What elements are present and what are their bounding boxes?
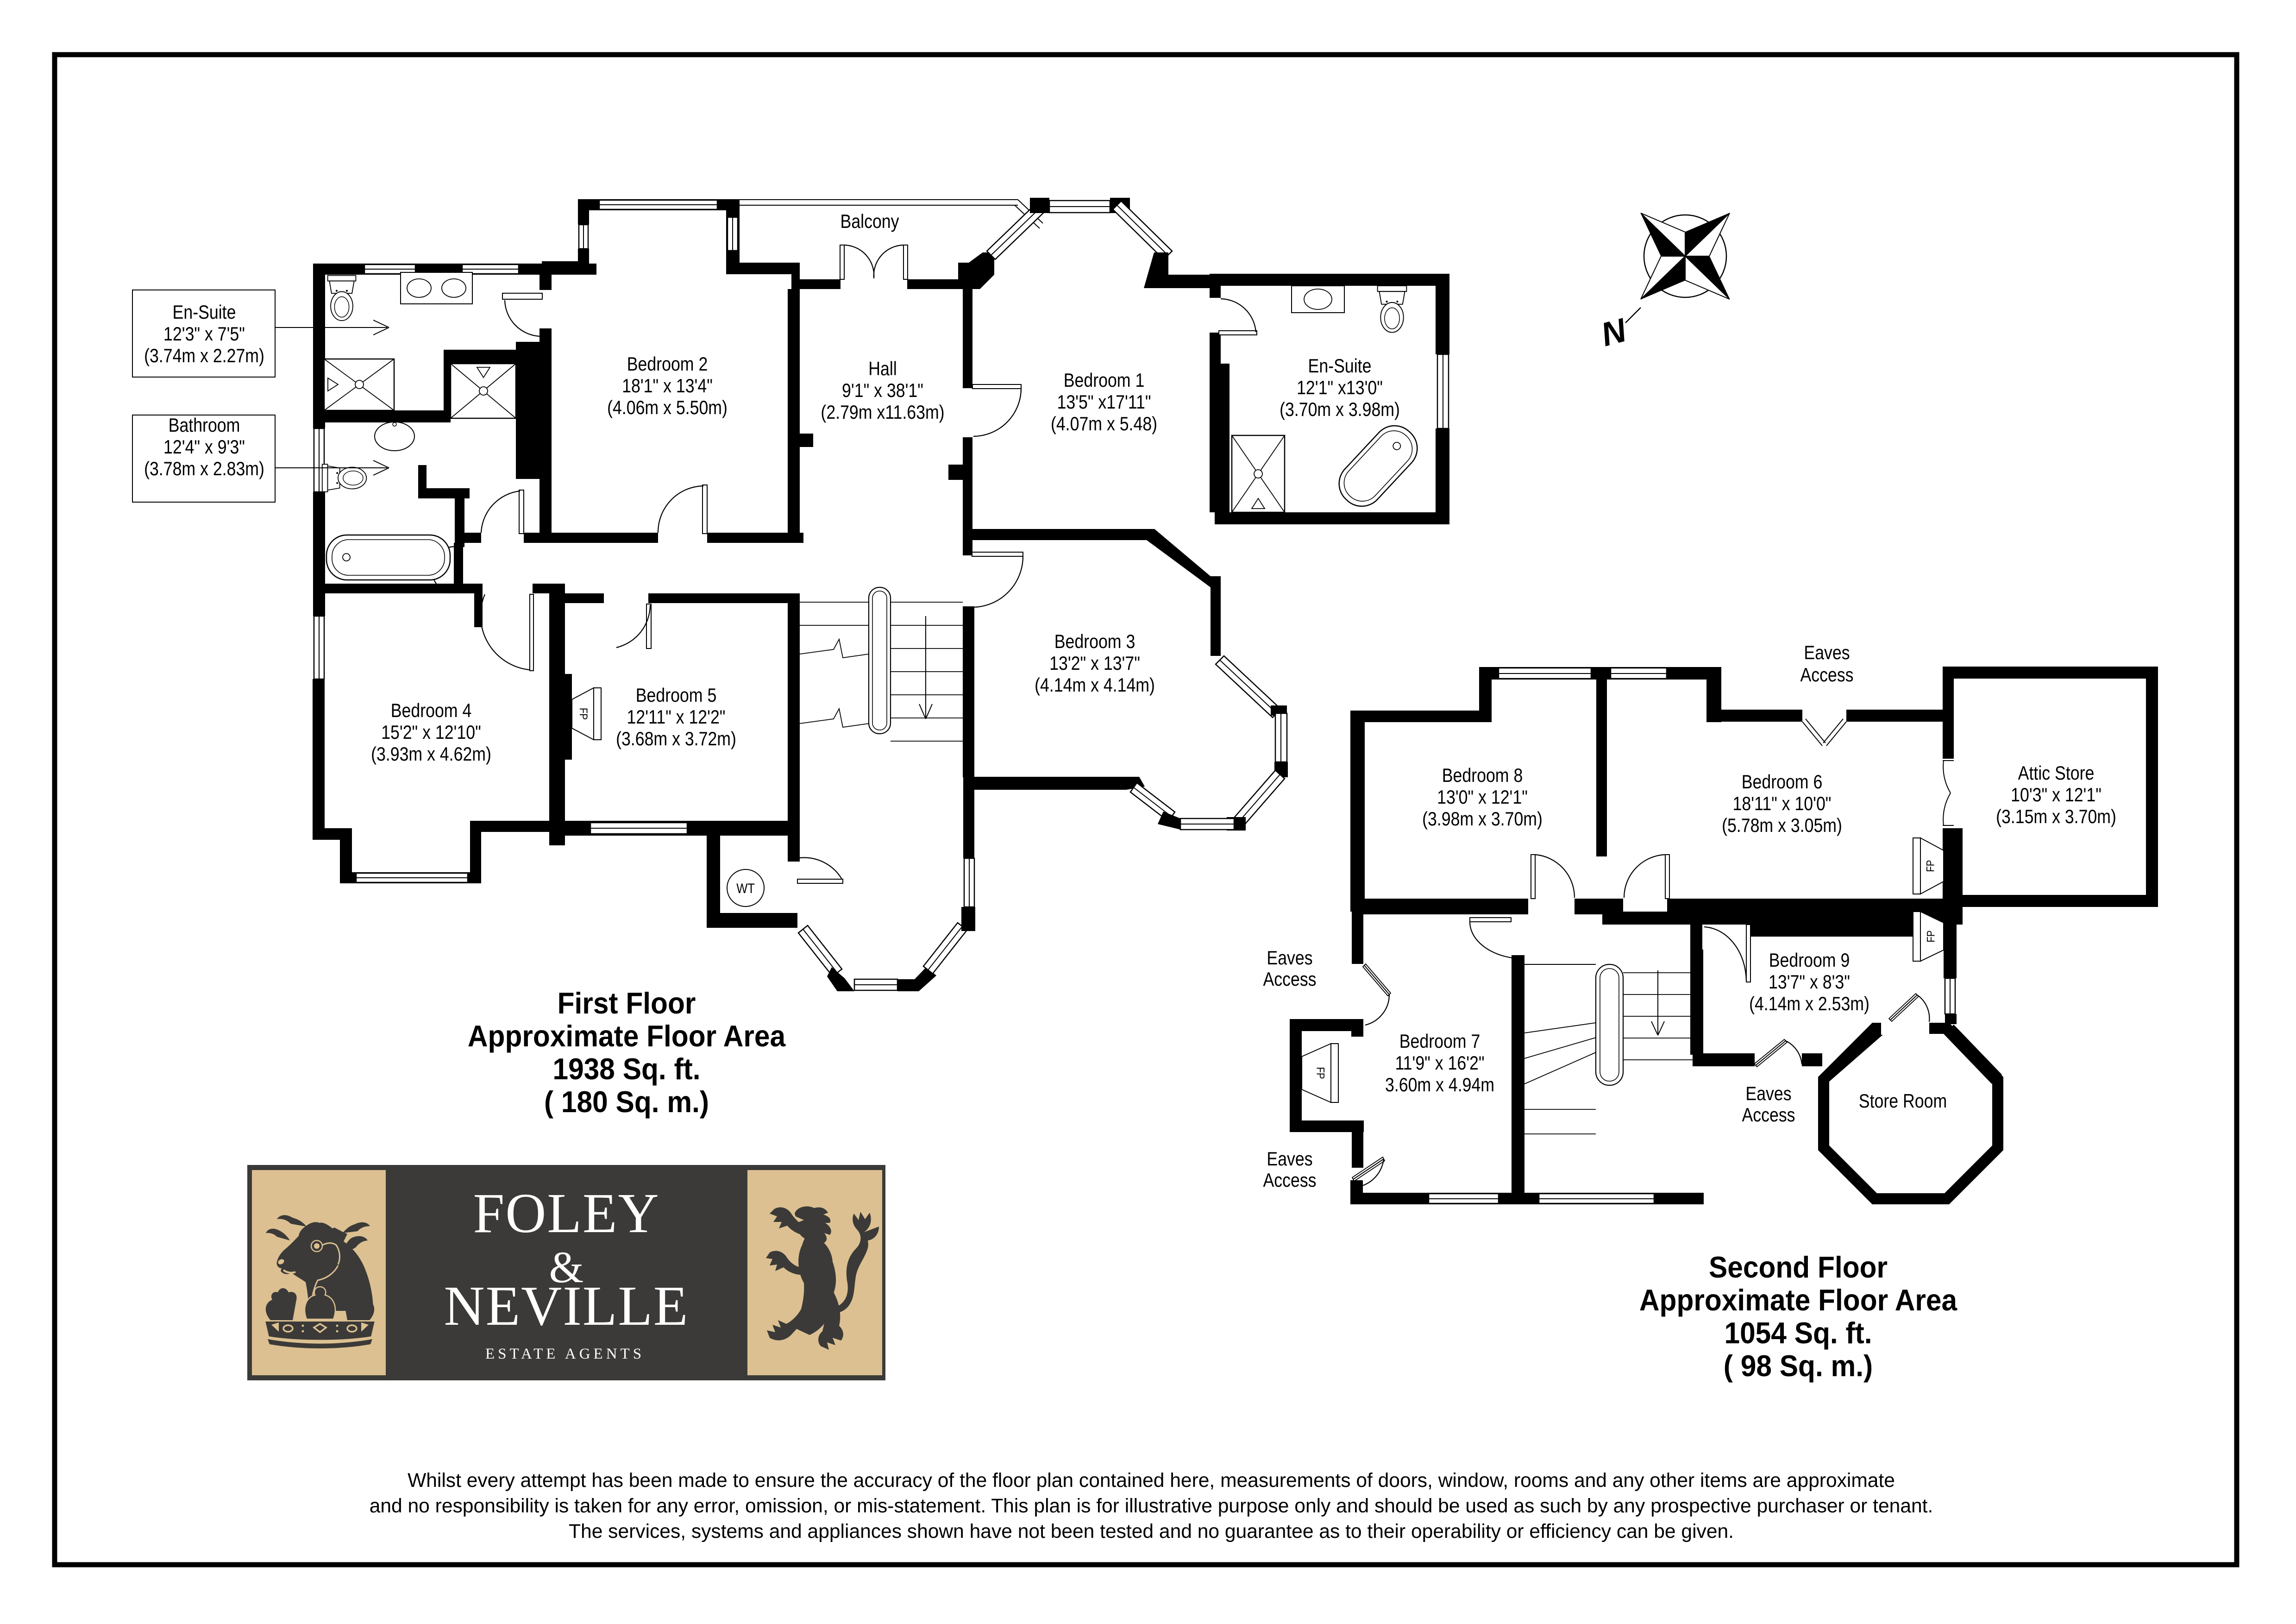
svg-text:3.60m x 4.94m: 3.60m x 4.94m: [1385, 1074, 1494, 1095]
svg-text:Bedroom 3: Bedroom 3: [1054, 631, 1135, 652]
svg-text:Balcony: Balcony: [841, 211, 899, 232]
svg-text:(4.07m x 5.48): (4.07m x 5.48): [1051, 413, 1157, 434]
svg-text:18'1" x 13'4": 18'1" x 13'4": [622, 375, 713, 397]
svg-text:The services, systems and appl: The services, systems and appliances sho…: [569, 1520, 1734, 1542]
svg-text:13'7" x 8'3": 13'7" x 8'3": [1769, 971, 1850, 993]
svg-text:Bedroom 1: Bedroom 1: [1064, 370, 1145, 391]
svg-text:Bedroom 7: Bedroom 7: [1399, 1031, 1480, 1052]
svg-text:13'2" x 13'7": 13'2" x 13'7": [1049, 653, 1140, 674]
svg-text:Store Room: Store Room: [1859, 1090, 1947, 1112]
svg-text:12'4" x 9'3": 12'4" x 9'3": [163, 436, 245, 458]
svg-text:13'0" x 12'1": 13'0" x 12'1": [1437, 787, 1528, 808]
svg-text:and no responsibility is taken: and no responsibility is taken for any e…: [370, 1495, 1933, 1517]
svg-text:Second Floor: Second Floor: [1709, 1251, 1888, 1284]
svg-text:Approximate Floor Area: Approximate Floor Area: [468, 1020, 786, 1053]
svg-text:Access: Access: [1263, 969, 1316, 990]
svg-text:(2.79m x11.63m): (2.79m x11.63m): [821, 402, 944, 423]
svg-text:(4.14m x 4.14m): (4.14m x 4.14m): [1035, 674, 1155, 696]
svg-text:Whilst every attempt has been: Whilst every attempt has been made to en…: [408, 1469, 1895, 1492]
svg-text:(3.68m x 3.72m): (3.68m x 3.72m): [616, 728, 736, 749]
svg-text:(5.78m x 3.05m): (5.78m x 3.05m): [1722, 815, 1842, 836]
svg-text:FOLEY: FOLEY: [473, 1182, 659, 1245]
svg-text:Bedroom 4: Bedroom 4: [391, 700, 472, 721]
svg-text:12'11" x 12'2": 12'11" x 12'2": [627, 706, 726, 728]
svg-text:13'5" x17'11": 13'5" x17'11": [1057, 391, 1151, 413]
svg-text:18'11" x 10'0": 18'11" x 10'0": [1733, 793, 1832, 814]
svg-text:12'3" x 7'5": 12'3" x 7'5": [163, 323, 245, 345]
svg-text:Access: Access: [1263, 1170, 1316, 1191]
svg-text:(3.74m x 2.27m): (3.74m x 2.27m): [144, 345, 264, 366]
svg-text:9'1" x 38'1": 9'1" x 38'1": [842, 380, 923, 401]
svg-text:NEVILLE: NEVILLE: [444, 1275, 689, 1337]
svg-text:First Floor: First Floor: [558, 987, 696, 1020]
svg-text:Bedroom 8: Bedroom 8: [1442, 765, 1523, 786]
svg-text:1938 Sq. ft.: 1938 Sq. ft.: [552, 1052, 700, 1086]
svg-text:Attic Store: Attic Store: [2018, 762, 2095, 784]
svg-text:En-Suite: En-Suite: [173, 302, 236, 323]
svg-text:(4.06m x 5.50m): (4.06m x 5.50m): [607, 397, 728, 418]
svg-text:ESTATE AGENTS: ESTATE AGENTS: [485, 1346, 645, 1362]
svg-text:Bedroom 6: Bedroom 6: [1742, 771, 1823, 793]
svg-text:FP: FP: [577, 708, 590, 720]
svg-text:FP: FP: [1924, 860, 1937, 872]
svg-text:(3.98m x 3.70m): (3.98m x 3.70m): [1422, 808, 1543, 830]
svg-text:Eaves: Eaves: [1745, 1083, 1791, 1104]
svg-text:FP: FP: [1925, 930, 1937, 942]
svg-text:10'3" x 12'1": 10'3" x 12'1": [2011, 784, 2102, 806]
svg-text:15'2" x 12'10": 15'2" x 12'10": [381, 722, 481, 743]
svg-text:( 98 Sq. m.): ( 98 Sq. m.): [1724, 1349, 1873, 1383]
svg-text:Approximate Floor Area: Approximate Floor Area: [1639, 1284, 1957, 1317]
svg-text:FP: FP: [1314, 1067, 1327, 1079]
svg-text:1054 Sq. ft.: 1054 Sq. ft.: [1724, 1316, 1872, 1350]
svg-text:(3.93m x 4.62m): (3.93m x 4.62m): [371, 743, 491, 765]
svg-text:(4.14m x 2.53m): (4.14m x 2.53m): [1749, 993, 1869, 1014]
svg-text:WT: WT: [736, 881, 755, 896]
svg-text:Bedroom 5: Bedroom 5: [636, 685, 717, 706]
svg-text:Bedroom 2: Bedroom 2: [627, 353, 708, 375]
svg-text:Hall: Hall: [868, 358, 897, 379]
svg-text:Bedroom 9: Bedroom 9: [1769, 950, 1850, 971]
svg-text:Eaves: Eaves: [1267, 1148, 1312, 1170]
svg-text:( 180 Sq. m.): ( 180 Sq. m.): [544, 1085, 709, 1119]
svg-text:Eaves: Eaves: [1804, 642, 1850, 663]
svg-text:(3.78m x 2.83m): (3.78m x 2.83m): [144, 458, 264, 479]
svg-text:Access: Access: [1742, 1104, 1795, 1126]
svg-text:12'1" x13'0": 12'1" x13'0": [1297, 377, 1383, 398]
svg-text:(3.70m x 3.98m): (3.70m x 3.98m): [1280, 399, 1400, 420]
svg-text:(3.15m x 3.70m): (3.15m x 3.70m): [1996, 806, 2116, 827]
svg-text:11'9" x 16'2": 11'9" x 16'2": [1395, 1052, 1484, 1074]
svg-text:En-Suite: En-Suite: [1308, 355, 1372, 377]
svg-text:Access: Access: [1800, 664, 1853, 686]
svg-text:Bathroom: Bathroom: [169, 415, 240, 436]
svg-text:Eaves: Eaves: [1267, 947, 1312, 969]
